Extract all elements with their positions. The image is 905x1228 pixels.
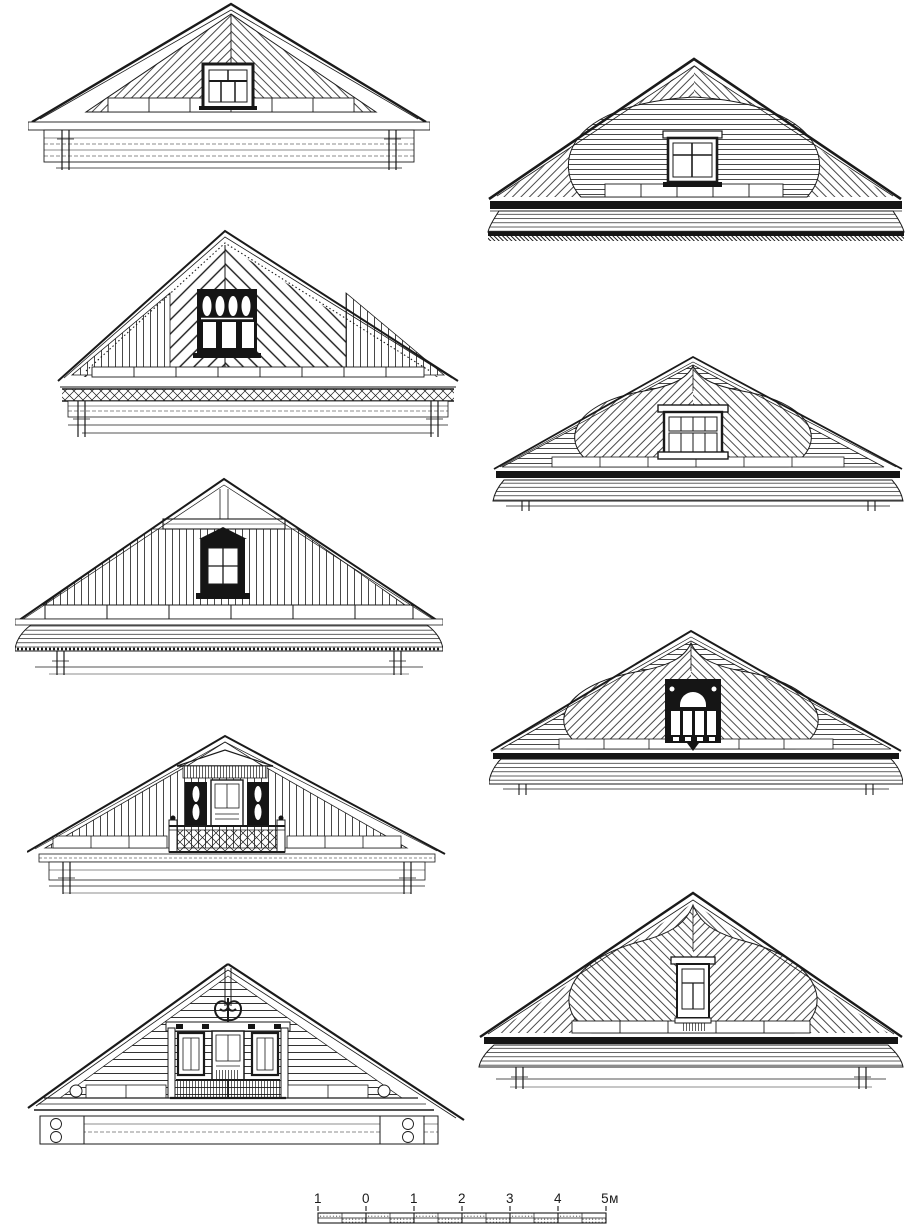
- gable-7-balcony-door: [185, 780, 269, 826]
- scale-bar: 1 0 1 2 3 4 5м: [310, 1191, 626, 1227]
- scale-label: 4: [546, 1191, 570, 1206]
- gable-1-drawing: [28, 2, 430, 172]
- scale-label: 5м: [598, 1191, 622, 1206]
- gable-6-window: [665, 679, 721, 751]
- gable-figure-1: [28, 2, 430, 172]
- drawing-sheet: 1 0 1 2 3 4 5м: [0, 0, 905, 1228]
- scale-bar-ruler: [310, 1206, 626, 1227]
- scale-label: 1: [306, 1191, 330, 1206]
- gable-9-drawing: [478, 891, 904, 1091]
- scale-label: 3: [498, 1191, 522, 1206]
- gable-4-window: [658, 405, 728, 459]
- gable-8-railing: [170, 1080, 286, 1098]
- gable-3-drawing: [56, 229, 460, 441]
- gable-8-sill-logs: [40, 1116, 438, 1144]
- gable-2-drawing: [487, 57, 905, 241]
- gable-figure-2: [487, 57, 905, 241]
- gable-1-window: [199, 64, 257, 110]
- gable-9-window: [671, 957, 715, 1031]
- gable-figure-6: [489, 627, 903, 797]
- gable-5-drawing: [15, 477, 443, 677]
- gable-3-window: [193, 289, 261, 358]
- gable-5-window: [196, 527, 250, 599]
- gable-4-drawing: [492, 351, 904, 511]
- scale-label: 2: [450, 1191, 474, 1206]
- gable-2-window: [663, 131, 722, 187]
- gable-figure-7: [27, 734, 447, 898]
- gable-figure-4: [492, 351, 904, 511]
- gable-figure-3: [56, 229, 460, 441]
- scale-label: 0: [354, 1191, 378, 1206]
- gable-figure-8: [26, 958, 466, 1158]
- gable-7-drawing: [27, 734, 447, 898]
- gable-figure-9: [478, 891, 904, 1091]
- gable-figure-5: [15, 477, 443, 677]
- scale-label: 1: [402, 1191, 426, 1206]
- gable-6-drawing: [489, 627, 903, 797]
- gable-8-drawing: [26, 958, 466, 1158]
